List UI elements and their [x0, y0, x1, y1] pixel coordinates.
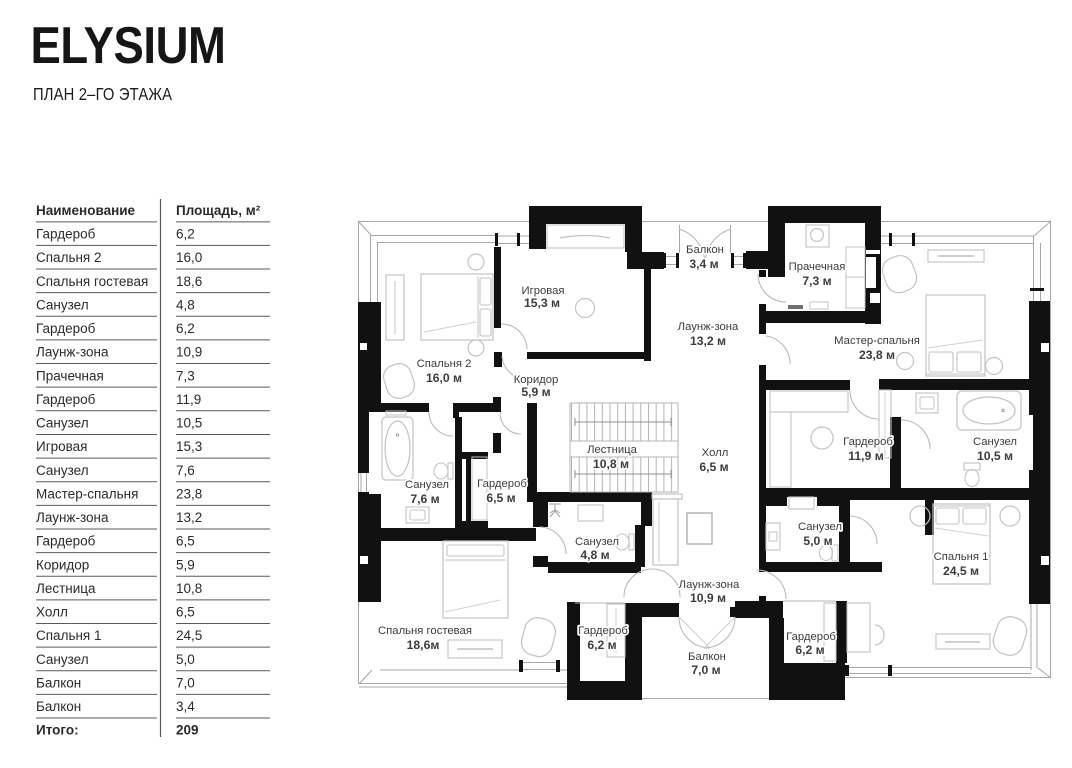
- svg-text:ПЛАН 2–ГО ЭТАЖА: ПЛАН 2–ГО ЭТАЖА: [33, 85, 172, 104]
- svg-text:16,0 м: 16,0 м: [426, 371, 462, 385]
- svg-text:6,5: 6,5: [176, 605, 195, 620]
- svg-text:11,9 м: 11,9 м: [848, 449, 883, 463]
- svg-text:Лаунж-зона: Лаунж-зона: [36, 510, 109, 525]
- svg-text:Спальня 2: Спальня 2: [417, 358, 472, 370]
- svg-text:209: 209: [176, 723, 199, 738]
- svg-text:Спальня гостевая: Спальня гостевая: [36, 274, 148, 289]
- svg-text:10,9 м: 10,9 м: [690, 591, 726, 605]
- svg-text:Гардероб: Гардероб: [36, 534, 96, 549]
- svg-text:13,2 м: 13,2 м: [690, 334, 726, 348]
- svg-text:Санузел: Санузел: [36, 652, 89, 667]
- svg-text:7,6 м: 7,6 м: [410, 492, 439, 506]
- svg-text:ELYSIUM: ELYSIUM: [31, 17, 226, 74]
- svg-text:5,0 м: 5,0 м: [803, 534, 832, 548]
- svg-text:6,2 м: 6,2 м: [587, 638, 616, 652]
- svg-text:6,5 м: 6,5 м: [486, 491, 515, 505]
- svg-text:Санузел: Санузел: [575, 536, 619, 548]
- svg-text:Санузел: Санузел: [973, 436, 1017, 448]
- svg-text:Мастер-спальня: Мастер-спальня: [36, 486, 138, 501]
- svg-text:Балкон: Балкон: [36, 675, 81, 690]
- svg-text:16,0: 16,0: [176, 250, 202, 265]
- svg-text:Лаунж-зона: Лаунж-зона: [36, 345, 109, 360]
- svg-text:24,5: 24,5: [176, 628, 202, 643]
- svg-text:24,5 м: 24,5 м: [943, 564, 979, 578]
- svg-text:Гардероб: Гардероб: [843, 436, 893, 448]
- svg-text:Игровая: Игровая: [36, 439, 87, 454]
- svg-text:Коридор: Коридор: [36, 557, 89, 572]
- svg-text:Гардероб: Гардероб: [36, 227, 96, 242]
- svg-text:Гардероб: Гардероб: [786, 631, 836, 643]
- svg-text:18,6м: 18,6м: [407, 638, 440, 652]
- svg-text:23,8 м: 23,8 м: [859, 348, 895, 362]
- svg-text:3,4 м: 3,4 м: [689, 257, 718, 271]
- svg-text:Гардероб: Гардероб: [36, 321, 96, 336]
- svg-text:10,8 м: 10,8 м: [593, 457, 629, 471]
- svg-text:Холл: Холл: [702, 447, 729, 459]
- svg-text:5,9: 5,9: [176, 557, 195, 572]
- svg-text:11,9: 11,9: [176, 392, 201, 407]
- svg-text:7,3 м: 7,3 м: [802, 274, 831, 288]
- svg-text:6,2 м: 6,2 м: [795, 643, 824, 657]
- svg-text:7,6: 7,6: [176, 463, 195, 478]
- svg-text:10,8: 10,8: [176, 581, 202, 596]
- svg-text:Прачечная: Прачечная: [36, 368, 104, 383]
- svg-text:Санузел: Санузел: [798, 521, 842, 533]
- svg-text:Лестница: Лестница: [587, 444, 638, 456]
- svg-text:10,5 м: 10,5 м: [977, 449, 1013, 463]
- svg-text:Наименование: Наименование: [36, 203, 136, 218]
- svg-text:7,0: 7,0: [176, 675, 195, 690]
- svg-text:6,5 м: 6,5 м: [699, 460, 728, 474]
- svg-text:6,5: 6,5: [176, 534, 195, 549]
- svg-text:23,8: 23,8: [176, 486, 202, 501]
- svg-text:Гардероб: Гардероб: [578, 625, 628, 637]
- svg-text:Санузел: Санузел: [36, 297, 89, 312]
- svg-text:5,0: 5,0: [176, 652, 195, 667]
- svg-text:6,2: 6,2: [176, 321, 195, 336]
- svg-text:Холл: Холл: [36, 605, 68, 620]
- svg-text:10,5: 10,5: [176, 416, 202, 431]
- svg-text:Санузел: Санузел: [36, 463, 89, 478]
- svg-text:3,4: 3,4: [176, 699, 195, 714]
- svg-text:Балкон: Балкон: [686, 244, 724, 256]
- svg-text:Балкон: Балкон: [688, 651, 726, 663]
- svg-text:4,8 м: 4,8 м: [580, 548, 609, 562]
- svg-text:Лестница: Лестница: [36, 581, 96, 596]
- svg-text:Площадь, м²: Площадь, м²: [176, 203, 261, 218]
- svg-text:Гардероб: Гардероб: [36, 392, 96, 407]
- svg-text:Лаунж-зона: Лаунж-зона: [679, 579, 740, 591]
- svg-text:13,2: 13,2: [176, 510, 202, 525]
- svg-text:Прачечная: Прачечная: [789, 261, 846, 273]
- svg-text:4,8: 4,8: [176, 297, 195, 312]
- svg-text:Спальня 2: Спальня 2: [36, 250, 102, 265]
- svg-text:Балкон: Балкон: [36, 699, 81, 714]
- svg-text:Спальня 1: Спальня 1: [36, 628, 102, 643]
- svg-text:18,6: 18,6: [176, 274, 202, 289]
- svg-text:5,9 м: 5,9 м: [521, 385, 550, 399]
- svg-text:Мастер-спальня: Мастер-спальня: [834, 335, 920, 347]
- svg-text:10,9: 10,9: [176, 345, 202, 360]
- svg-text:Санузел: Санузел: [36, 416, 89, 431]
- svg-text:15,3: 15,3: [176, 439, 202, 454]
- svg-text:Лаунж-зона: Лаунж-зона: [678, 321, 739, 333]
- svg-text:Спальня 1: Спальня 1: [934, 551, 989, 563]
- svg-text:Гардероб: Гардероб: [477, 478, 527, 490]
- svg-text:Спальня гостевая: Спальня гостевая: [378, 625, 472, 637]
- svg-text:Итого:: Итого:: [36, 723, 79, 738]
- svg-text:6,2: 6,2: [176, 227, 195, 242]
- svg-text:7,0 м: 7,0 м: [691, 663, 720, 677]
- svg-text:15,3 м: 15,3 м: [524, 296, 560, 310]
- svg-text:7,3: 7,3: [176, 368, 195, 383]
- svg-text:Санузел: Санузел: [405, 479, 449, 491]
